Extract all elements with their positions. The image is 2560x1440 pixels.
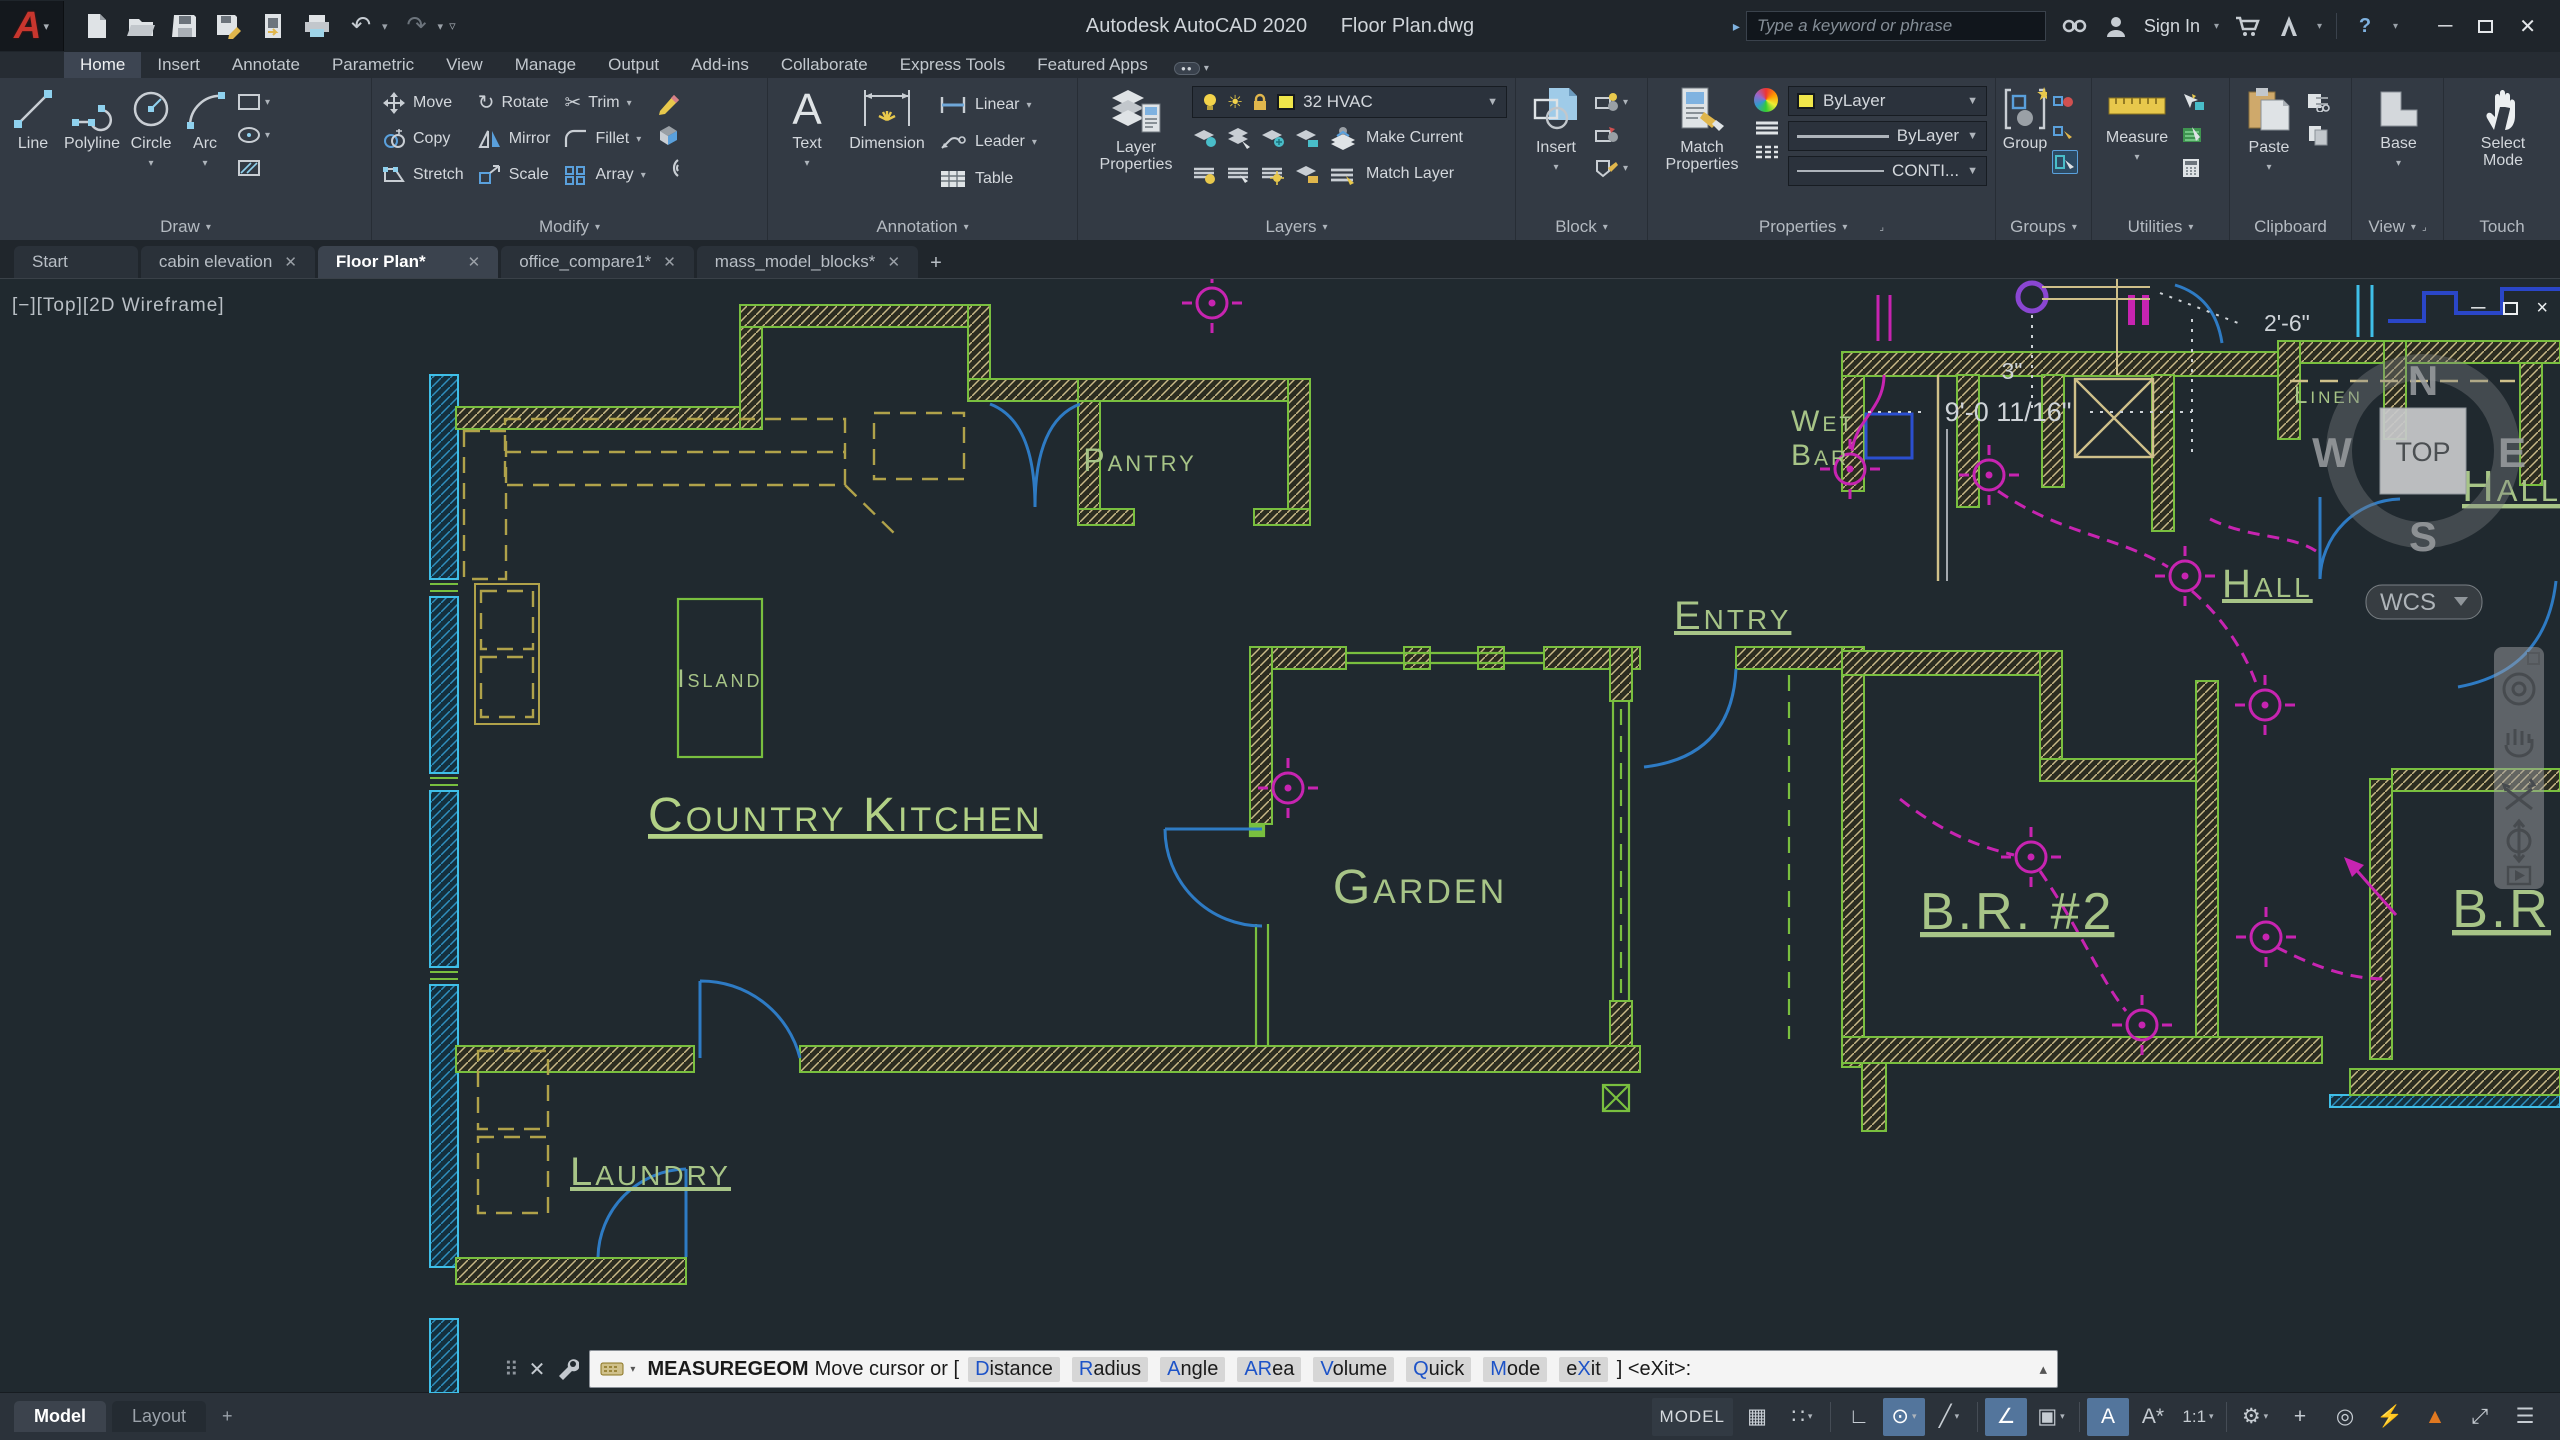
file-tab-bar: Start cabin elevation✕ Floor Plan*✕ offi…	[0, 240, 2560, 278]
dimension-icon	[857, 86, 917, 132]
panel-block: Insert▾ ▾ ▾ Block▾	[1516, 78, 1648, 240]
label-hall: Hall	[2222, 562, 2313, 606]
new-layout-button[interactable]: +	[212, 1406, 243, 1427]
svg-text:A: A	[792, 86, 822, 132]
navigation-bar[interactable]	[2494, 647, 2544, 889]
help-dropdown[interactable]: ▾	[2393, 21, 2398, 32]
layer-unlock-icon[interactable]	[1294, 163, 1320, 185]
customization-menu-icon[interactable]: ☰	[2504, 1398, 2546, 1436]
help-icon[interactable]: ?	[2351, 12, 2379, 40]
group-selection-toggle[interactable]	[2052, 150, 2078, 174]
save-button[interactable]	[170, 11, 200, 41]
base-button[interactable]: Base▾	[2369, 86, 2429, 172]
match-layer-button[interactable]: Match Layer	[1366, 165, 1454, 183]
label-entry: Entry	[1674, 594, 1791, 638]
object-color-dropdown[interactable]: ByLayer▼	[1788, 86, 1987, 116]
ellipse-tool-button[interactable]: ▾	[236, 123, 270, 147]
block-attribute-button[interactable]	[1594, 123, 1628, 147]
viewport-controls[interactable]: [−][Top][2D Wireframe]	[12, 295, 225, 317]
insert-icon	[1531, 86, 1581, 136]
panel-title-properties[interactable]: Properties▾⌟	[1648, 214, 1995, 240]
ortho-icon[interactable]: ∟	[1838, 1398, 1880, 1436]
window-title: Autodesk AutoCAD 2020 Floor Plan.dwg	[1086, 15, 1474, 38]
tall-cabinet	[475, 584, 539, 724]
viewcube-east[interactable]: E	[2498, 429, 2526, 476]
cut-button[interactable]	[2306, 90, 2332, 114]
undo-button[interactable]: ↶	[346, 11, 376, 41]
array-button[interactable]: Array▾	[564, 160, 645, 190]
current-layer-name: 32 HVAC	[1303, 92, 1373, 112]
line-button[interactable]: Line	[10, 86, 56, 152]
command-input-bar[interactable]: ▾ MEASUREGEOM Move cursor or [ Distance …	[589, 1350, 2058, 1388]
maximize-button[interactable]	[2478, 20, 2493, 33]
model-tab[interactable]: Model	[14, 1401, 106, 1432]
quick-select-button[interactable]	[2180, 90, 2206, 114]
new-file-button[interactable]	[82, 11, 112, 41]
leader-button[interactable]: Leader▾	[938, 127, 1037, 157]
cmd-option-volume[interactable]: Volume	[1313, 1357, 1394, 1382]
cmd-option-mode[interactable]: Mode	[1483, 1357, 1547, 1382]
paste-icon	[2247, 86, 2291, 136]
label-pantry: Pantry	[1083, 442, 1197, 478]
label-laundry: Laundry	[570, 1150, 731, 1194]
layer-match-icon[interactable]	[1226, 163, 1252, 185]
offset-button[interactable]	[654, 156, 682, 180]
command-prompt-prefix: Move cursor or [	[815, 1358, 959, 1381]
move-button[interactable]: Move	[382, 88, 464, 118]
save-as-button[interactable]	[214, 11, 244, 41]
viewport-minimize-button[interactable]: ─	[2471, 297, 2485, 320]
tab-output[interactable]: Output	[592, 52, 675, 78]
stretch-button[interactable]: Stretch	[382, 160, 464, 190]
undo-dropdown[interactable]: ▾	[382, 20, 388, 33]
sign-in-button[interactable]: Sign In	[2144, 16, 2200, 37]
tab-insert[interactable]: Insert	[141, 52, 216, 78]
viewcube-top-label: TOP	[2395, 437, 2450, 467]
tab-manage[interactable]: Manage	[499, 52, 592, 78]
customize-qat-button[interactable]: ▿	[449, 18, 456, 34]
document-title: Floor Plan.dwg	[1341, 15, 1474, 37]
viewcube[interactable]: N S W E TOP WCS	[2312, 357, 2526, 619]
layer-isolate-icon[interactable]	[1226, 127, 1252, 149]
app-title: Autodesk AutoCAD 2020	[1086, 15, 1307, 37]
dimension-button[interactable]: Dimension	[844, 86, 930, 152]
cmd-option-area[interactable]: ARea	[1237, 1357, 1301, 1382]
door-leaf-teal	[2358, 285, 2372, 337]
ribbon-tab-row: Home Insert Annotate Parametric View Man…	[0, 52, 2560, 78]
lineweight-list-icon[interactable]	[1754, 120, 1780, 136]
linetype-dropdown[interactable]: CONTI...▼	[1788, 156, 1987, 186]
cmd-option-distance[interactable]: Distance	[968, 1357, 1060, 1382]
workspace-gear-icon[interactable]: ⚙▾	[2234, 1398, 2276, 1436]
titlebar-right: ▸ Sign In ▾ ▾ ? ▾ ─ ✕	[1733, 11, 2560, 41]
close-button[interactable]: ✕	[2519, 14, 2536, 39]
svg-text:★: ★	[2036, 86, 2047, 104]
paste-button[interactable]: Paste▾	[2240, 86, 2298, 176]
panel-groups: ★ Group Groups▾	[1996, 78, 2092, 240]
quick-access-toolbar: ↶▾ ↷▾ ▿	[82, 11, 456, 41]
sign-in-dropdown[interactable]: ▾	[2214, 21, 2219, 32]
polyline-icon	[69, 86, 115, 132]
viewcube-north[interactable]: N	[2408, 357, 2438, 404]
active-command: MEASUREGEOM	[647, 1358, 808, 1381]
tab-featured-apps[interactable]: Featured Apps	[1021, 52, 1164, 78]
annotation-scale-button[interactable]: 1:1▾	[2177, 1398, 2219, 1436]
layer-on-bulb-icon	[1201, 92, 1219, 112]
panel-title-modify[interactable]: Modify▾	[372, 214, 767, 240]
close-icon[interactable]: ✕	[663, 253, 676, 271]
panel-touch: Select Mode Touch	[2444, 78, 2560, 240]
copy-button[interactable]: Copy	[382, 124, 464, 154]
annotation-autoscale-icon[interactable]: A*	[2132, 1398, 2174, 1436]
label-wet: Wet	[1791, 405, 1855, 438]
file-tab-mass-model-blocks[interactable]: mass_model_blocks*✕	[697, 246, 918, 278]
table-button[interactable]: Table	[938, 164, 1037, 194]
command-close-icon[interactable]: ✕	[529, 1357, 546, 1382]
linear-button[interactable]: Linear▾	[938, 90, 1037, 120]
close-icon[interactable]: ✕	[284, 253, 297, 271]
quick-calculator-button[interactable]	[2180, 156, 2206, 180]
status-bar: Model Layout + MODEL ▦ ∷▾ ∟ ⊙▾ ╱▾ ∠ ▣▾ A…	[0, 1392, 2560, 1440]
open-file-button[interactable]	[126, 11, 156, 41]
polyline-button[interactable]: Polyline	[64, 86, 120, 152]
panel-draw: Line Polyline Circle▾ Arc▾ ▾ ▾	[0, 78, 372, 240]
layer-freeze-icon[interactable]	[1260, 127, 1286, 149]
panel-title-clipboard[interactable]: Clipboard	[2230, 214, 2351, 240]
ungroup-button[interactable]	[2052, 90, 2078, 114]
user-icon[interactable]	[2102, 12, 2130, 40]
search-input[interactable]	[1746, 11, 2046, 41]
search-icon[interactable]	[2060, 12, 2088, 40]
annotation-visibility-icon[interactable]: A	[2087, 1398, 2129, 1436]
mirror-button[interactable]: Mirror	[478, 124, 551, 154]
text-icon: A	[784, 86, 830, 132]
door-swings	[598, 285, 2556, 1257]
erase-button[interactable]	[654, 90, 682, 114]
recent-commands-dropdown[interactable]: ▾	[630, 1364, 635, 1375]
layer-properties-button[interactable]: Layer Properties	[1088, 86, 1184, 173]
isolate-objects-icon[interactable]: ◎	[2324, 1398, 2366, 1436]
command-prompt-suffix: ] <eXit>:	[1617, 1358, 1692, 1381]
tab-collaborate[interactable]: Collaborate	[765, 52, 884, 78]
chevron-down-icon: ▾	[43, 20, 49, 33]
circle-icon	[128, 86, 174, 132]
close-icon[interactable]: ✕	[468, 253, 481, 271]
drawing-canvas[interactable]: Pantry Island Country Kitchen Garden Ent…	[0, 278, 2560, 1392]
crosshair-icon[interactable]: +	[2279, 1398, 2321, 1436]
object-snap-icon[interactable]: ▣▾	[2030, 1398, 2072, 1436]
fullscreen-icon[interactable]: ⤢	[2459, 1398, 2501, 1436]
close-icon[interactable]: ✕	[887, 253, 900, 271]
rectangle-tool-button[interactable]: ▾	[236, 90, 270, 114]
clean-screen-icon[interactable]: ▲	[2414, 1398, 2456, 1436]
tab-add-ins[interactable]: Add-ins	[675, 52, 765, 78]
panel-clipboard: Paste▾ Clipboard	[2230, 78, 2352, 240]
ribbon: Line Polyline Circle▾ Arc▾ ▾ ▾	[0, 78, 2560, 240]
line-icon	[10, 86, 56, 132]
linetype-list-icon[interactable]	[1754, 144, 1780, 160]
color-wheel-icon[interactable]	[1754, 88, 1778, 112]
cmd-option-exit[interactable]: eXit	[1559, 1357, 1607, 1382]
select-mode-button[interactable]: Select Mode	[2466, 86, 2540, 169]
layer-lock-small-icon[interactable]	[1294, 127, 1320, 149]
exchange-dropdown[interactable]: ▾	[2317, 21, 2322, 32]
match-properties-button[interactable]: Match Properties	[1658, 86, 1746, 173]
panel-title-view[interactable]: View▾⌟	[2352, 214, 2443, 240]
label-br2: B.R. #2	[1920, 883, 2114, 941]
object-snap-tracking-icon[interactable]: ∠	[1985, 1398, 2027, 1436]
measure-button[interactable]: Measure▾	[2102, 86, 2172, 166]
define-attribute-button[interactable]: ▾	[1594, 156, 1628, 180]
scale-button[interactable]: Scale	[478, 160, 551, 190]
layer-sun-gold-icon[interactable]	[1260, 163, 1286, 185]
layer-freeze-sun-icon: ☀	[1227, 92, 1243, 113]
cmd-option-radius[interactable]: Radius	[1072, 1357, 1148, 1382]
polar-tracking-icon[interactable]: ⊙▾	[1883, 1398, 1925, 1436]
viewcube-south[interactable]: S	[2409, 513, 2437, 560]
redo-dropdown[interactable]: ▾	[438, 20, 444, 33]
match-layer-icon[interactable]	[1328, 162, 1358, 186]
panel-modify: Move ↻Rotate ✂Trim▾ Copy Mirror Fillet▾ …	[372, 78, 768, 240]
exchange-apps-icon[interactable]	[2275, 12, 2303, 40]
arc-button[interactable]: Arc▾	[182, 86, 228, 172]
viewport-window-buttons: ─ ×	[2471, 297, 2548, 320]
model-space-badge[interactable]: MODEL	[1652, 1398, 1733, 1436]
panel-title-utilities[interactable]: Utilities▾	[2092, 214, 2229, 240]
file-tab-office-compare[interactable]: office_compare1*✕	[501, 246, 694, 278]
group-button[interactable]: ★ Group	[2002, 86, 2048, 152]
label-garden: Garden	[1333, 861, 1507, 914]
id-point-button[interactable]	[2180, 123, 2206, 147]
layer-bulb-gold-icon[interactable]	[1192, 163, 1218, 185]
panel-title-block[interactable]: Block▾	[1516, 214, 1647, 240]
hand-icon	[2482, 86, 2524, 132]
panel-view: Base▾ View▾⌟	[2352, 78, 2444, 240]
ribbon-display-toggle[interactable]: ●●▾	[1174, 62, 1209, 78]
lineweight-dropdown[interactable]: ByLayer▼	[1788, 121, 1987, 151]
tab-parametric[interactable]: Parametric	[316, 52, 430, 78]
command-line: ⠿ ✕ ▾ MEASUREGEOM Move cursor or [ Dista…	[502, 1350, 2058, 1388]
redo-button[interactable]: ↷	[402, 11, 432, 41]
layer-lock-icon	[1251, 92, 1269, 112]
layout-tab[interactable]: Layout	[112, 1401, 206, 1432]
print-button[interactable]	[302, 11, 332, 41]
insert-button[interactable]: Insert▾	[1526, 86, 1586, 176]
panel-layers: Layer Properties ☀ 32 HVAC ▼	[1078, 78, 1516, 240]
panel-title-annotation[interactable]: Annotation▾	[768, 214, 1077, 240]
file-tab-start[interactable]: Start	[14, 246, 138, 278]
application-menu-button[interactable]: A ▾	[0, 1, 64, 51]
panel-title-layers[interactable]: Layers▾	[1078, 214, 1515, 240]
panel-title-draw[interactable]: Draw▾	[0, 214, 371, 240]
tab-home[interactable]: Home	[64, 52, 141, 78]
make-current-button[interactable]: Make Current	[1366, 129, 1463, 147]
dim-3in: 3"	[2002, 358, 2023, 384]
title-bar: A ▾ ↶▾ ↷▾ ▿ Autodesk AutoCAD 2020 Floor …	[0, 0, 2560, 52]
viewport-restore-button[interactable]	[2503, 302, 2518, 315]
dim-9-0: 9'-0 11/16"	[1945, 397, 2072, 427]
copy-clip-button[interactable]	[2306, 123, 2332, 147]
make-current-icon[interactable]	[1328, 126, 1358, 150]
floor-plan: Pantry Island Country Kitchen Garden Ent…	[0, 279, 2560, 1393]
file-tab-cabin-elevation[interactable]: cabin elevation✕	[141, 246, 315, 278]
label-bar: Bar	[1791, 439, 1849, 472]
export-button[interactable]	[258, 11, 288, 41]
wrench-icon[interactable]	[555, 1357, 579, 1381]
match-properties-icon	[1676, 86, 1728, 136]
fillet-button[interactable]: Fillet▾	[564, 124, 645, 154]
tab-view[interactable]: View	[430, 52, 499, 78]
panel-title-touch[interactable]: Touch	[2444, 214, 2560, 240]
graphics-performance-icon[interactable]: ⚡	[2369, 1398, 2411, 1436]
panel-annotation: A Text▾ Dimension Linear▾ Leader▾ Table …	[768, 78, 1078, 240]
cmd-option-angle[interactable]: Angle	[1160, 1357, 1225, 1382]
hatch-tool-button[interactable]	[236, 156, 270, 180]
tab-annotate[interactable]: Annotate	[216, 52, 316, 78]
edit-attribute-button[interactable]: ▾	[1594, 90, 1628, 114]
dim-2-6: 2'-6"	[2264, 310, 2310, 336]
measure-ruler-icon	[2106, 86, 2168, 126]
group-icon: ★	[2003, 86, 2047, 132]
keyboard-icon	[600, 1361, 624, 1377]
command-grip-handle[interactable]: ⠿	[504, 1357, 519, 1382]
base-icon	[2375, 86, 2423, 132]
view-expander-icon: ⌟	[2422, 222, 2427, 233]
circle-button[interactable]: Circle▾	[128, 86, 174, 172]
label-country-kitchen: Country Kitchen	[648, 789, 1043, 842]
viewcube-west[interactable]: W	[2312, 429, 2352, 476]
wcs-label: WCS	[2380, 589, 2436, 616]
properties-expander-icon: ⌟	[1879, 222, 1884, 233]
cart-icon[interactable]	[2233, 12, 2261, 40]
cmd-option-quick[interactable]: Quick	[1406, 1357, 1471, 1382]
autocad-window: A ▾ ↶▾ ↷▾ ▿ Autodesk AutoCAD 2020 Floor …	[0, 0, 2560, 1440]
command-history-toggle[interactable]: ▴	[2039, 1360, 2047, 1378]
file-tab-floor-plan[interactable]: Floor Plan*✕	[318, 246, 498, 278]
minimize-button[interactable]: ─	[2438, 15, 2452, 38]
trim-button[interactable]: ✂Trim▾	[564, 88, 645, 118]
search-expand-icon[interactable]: ▸	[1733, 18, 1740, 35]
explode-button[interactable]	[654, 123, 682, 147]
snap-icon[interactable]: ∷▾	[1781, 1398, 1823, 1436]
rotate-button[interactable]: ↻Rotate	[478, 88, 551, 118]
autocad-logo-icon: A	[14, 5, 41, 48]
panel-title-groups[interactable]: Groups▾	[1996, 214, 2091, 240]
viewport-close-button[interactable]: ×	[2536, 297, 2548, 320]
text-button[interactable]: A Text▾	[778, 86, 836, 172]
layer-color-swatch	[1277, 94, 1295, 110]
new-tab-button[interactable]: +	[921, 248, 951, 278]
panel-utilities: Measure▾ Utilities▾	[2092, 78, 2230, 240]
layer-off-icon[interactable]	[1192, 127, 1218, 149]
tab-express-tools[interactable]: Express Tools	[884, 52, 1022, 78]
grid-icon[interactable]: ▦	[1736, 1398, 1778, 1436]
layer-dropdown[interactable]: ☀ 32 HVAC ▼	[1192, 86, 1507, 118]
panel-properties: Match Properties ByLayer▼ ByLayer▼ CONTI…	[1648, 78, 1996, 240]
label-island: Island	[678, 665, 763, 693]
arc-icon	[182, 86, 228, 132]
object-color-swatch	[1797, 93, 1815, 109]
group-edit-button[interactable]	[2052, 120, 2078, 144]
isometric-drafting-icon[interactable]: ╱▾	[1928, 1398, 1970, 1436]
layer-properties-icon	[1108, 86, 1164, 136]
